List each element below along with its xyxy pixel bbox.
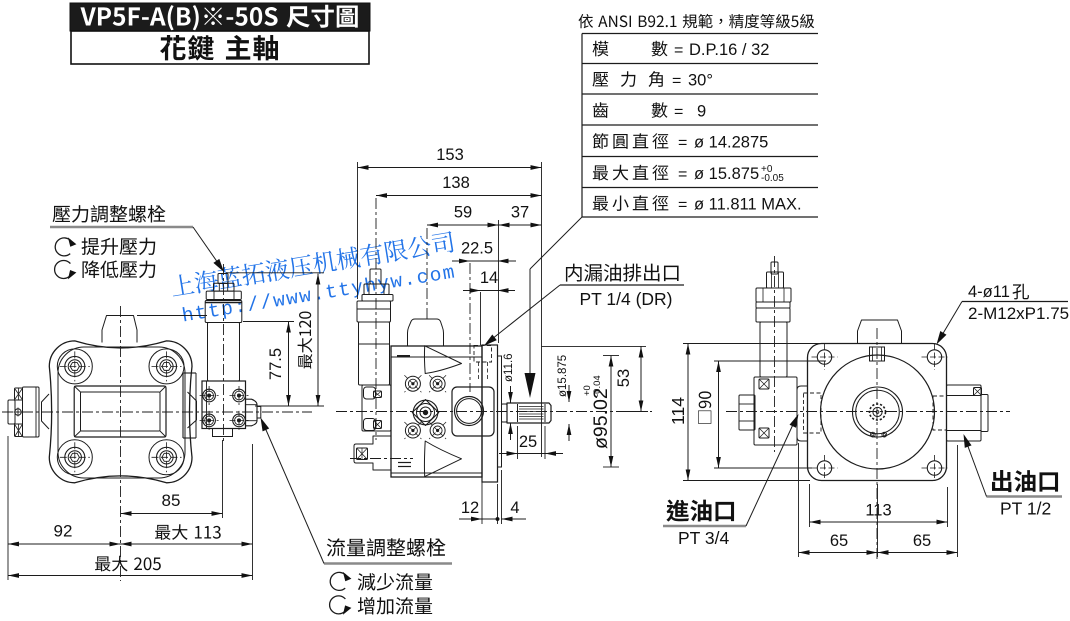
svg-text:=: =: [678, 197, 687, 214]
svg-text:ø 14.2875: ø 14.2875: [694, 134, 768, 152]
svg-text:ø11.6: ø11.6: [503, 353, 515, 382]
svg-text:37: 37: [511, 204, 529, 222]
svg-text:2-M12xP1.75: 2-M12xP1.75: [968, 304, 1069, 323]
svg-text:4: 4: [510, 499, 519, 517]
svg-text:=: =: [674, 42, 683, 59]
svg-text:153: 153: [436, 146, 464, 164]
svg-text:ø 11.811 MAX.: ø 11.811 MAX.: [694, 196, 802, 214]
svg-text:25: 25: [519, 433, 537, 451]
svg-text:PT 1/2: PT 1/2: [1000, 499, 1051, 519]
svg-text:77.5: 77.5: [267, 348, 285, 380]
svg-text:85: 85: [162, 491, 181, 510]
svg-text:9: 9: [697, 103, 706, 121]
svg-text:PT 1/4 (DR): PT 1/4 (DR): [579, 289, 672, 309]
svg-text:65: 65: [913, 532, 931, 550]
svg-text:PT 3/4: PT 3/4: [678, 528, 730, 548]
svg-text:=: =: [672, 73, 681, 90]
svg-text:=: =: [678, 166, 687, 183]
svg-text:4-ø11: 4-ø11: [968, 283, 1010, 301]
svg-text:ø15.875: ø15.875: [557, 355, 569, 397]
svg-text:138: 138: [442, 174, 470, 192]
svg-text:53: 53: [615, 369, 633, 387]
svg-text:ø 15.875: ø 15.875: [694, 165, 759, 183]
svg-text:-0.04: -0.04: [592, 375, 603, 397]
svg-text:30°: 30°: [688, 72, 713, 90]
svg-text:114: 114: [668, 397, 688, 425]
svg-text:65: 65: [830, 532, 848, 550]
svg-text:12: 12: [461, 499, 479, 517]
svg-text:D.P.16 / 32: D.P.16 / 32: [689, 41, 769, 59]
svg-text:=: =: [678, 135, 687, 152]
svg-text:59: 59: [454, 204, 472, 222]
svg-text:92: 92: [54, 522, 73, 541]
svg-text:14: 14: [480, 269, 498, 287]
svg-text:-0.05: -0.05: [761, 173, 784, 184]
svg-text:=: =: [674, 104, 683, 121]
svg-text:22.5: 22.5: [461, 240, 493, 258]
svg-text:113: 113: [865, 502, 891, 520]
